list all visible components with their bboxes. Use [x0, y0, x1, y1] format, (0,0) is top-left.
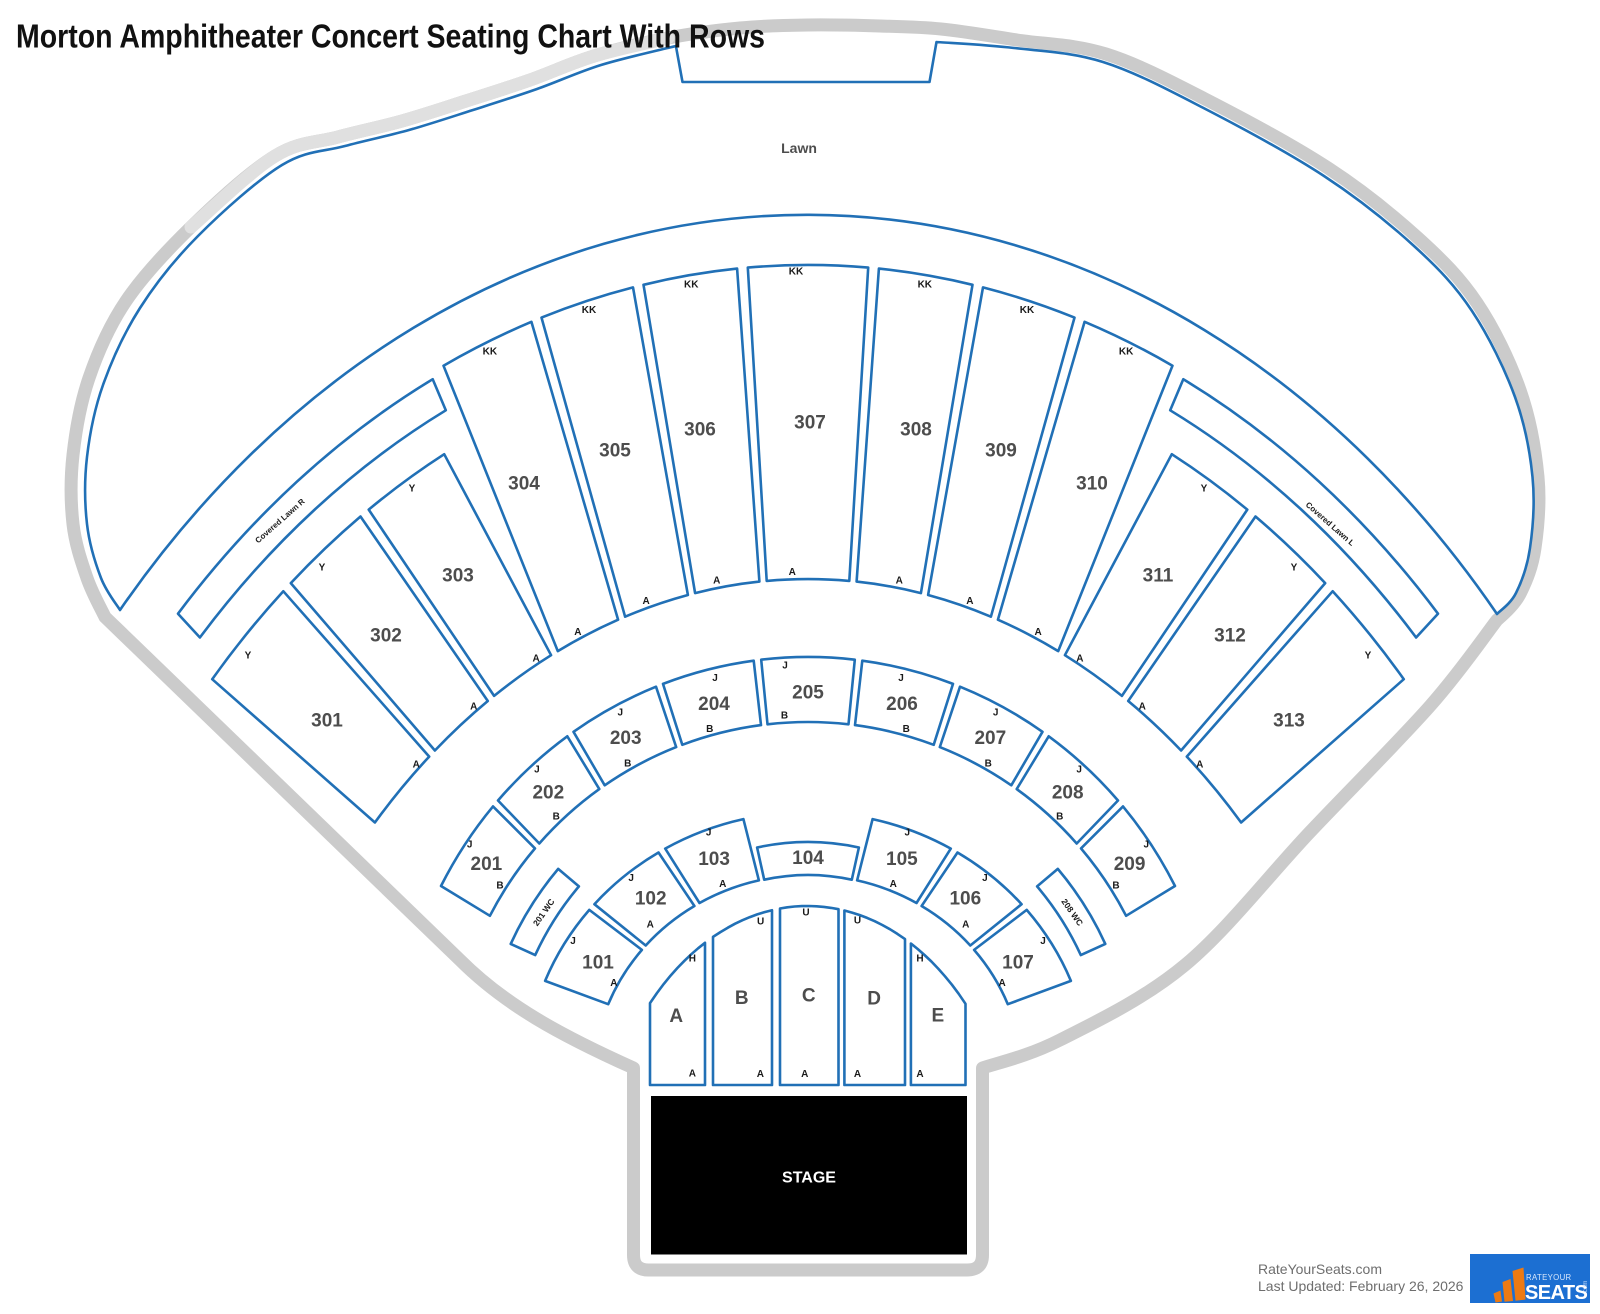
- svg-text:A: A: [642, 596, 649, 607]
- svg-text:202: 202: [532, 783, 564, 804]
- svg-text:U: U: [802, 908, 809, 919]
- svg-text:Last Updated: February 26, 202: Last Updated: February 26, 2026: [1258, 1278, 1464, 1294]
- svg-text:J: J: [1144, 839, 1150, 850]
- svg-text:203: 203: [610, 728, 642, 749]
- svg-text:A: A: [647, 920, 654, 931]
- svg-text:KK: KK: [483, 346, 498, 357]
- svg-text:J: J: [905, 827, 911, 838]
- svg-text:Y: Y: [245, 651, 252, 662]
- svg-text:U: U: [757, 916, 764, 927]
- svg-text:STAGE: STAGE: [782, 1170, 836, 1187]
- svg-text:A: A: [1034, 627, 1041, 638]
- svg-text:J: J: [467, 839, 473, 850]
- svg-text:B: B: [1056, 812, 1063, 823]
- svg-text:Y: Y: [409, 484, 416, 495]
- svg-text:J: J: [782, 661, 788, 672]
- svg-text:105: 105: [886, 849, 918, 870]
- svg-text:B: B: [624, 758, 631, 769]
- svg-text:KK: KK: [1119, 346, 1134, 357]
- svg-text:A: A: [854, 1069, 861, 1080]
- svg-text:B: B: [781, 711, 788, 722]
- svg-text:Y: Y: [319, 563, 326, 574]
- svg-text:A: A: [890, 879, 897, 890]
- svg-text:J: J: [706, 827, 712, 838]
- svg-text:305: 305: [599, 441, 631, 462]
- svg-text:206: 206: [886, 694, 918, 715]
- svg-text:KK: KK: [1020, 305, 1035, 316]
- svg-text:313: 313: [1273, 711, 1305, 732]
- svg-text:KK: KK: [684, 280, 699, 291]
- svg-text:H: H: [916, 954, 923, 965]
- svg-text:J: J: [712, 673, 718, 684]
- svg-text:J: J: [1040, 936, 1046, 947]
- svg-text:A: A: [470, 702, 477, 713]
- svg-text:J: J: [1076, 764, 1082, 775]
- svg-text:A: A: [574, 627, 581, 638]
- svg-text:Lawn: Lawn: [781, 140, 817, 156]
- svg-text:RateYourSeats.com: RateYourSeats.com: [1258, 1261, 1382, 1277]
- svg-text:C: C: [802, 985, 816, 1006]
- svg-text:KK: KK: [789, 267, 804, 278]
- svg-text:A: A: [689, 1069, 696, 1080]
- svg-text:309: 309: [985, 441, 1017, 462]
- svg-text:A: A: [413, 759, 420, 770]
- svg-text:E: E: [931, 1005, 944, 1026]
- svg-text:A: A: [713, 576, 720, 587]
- svg-text:J: J: [534, 764, 540, 775]
- svg-text:301: 301: [311, 711, 343, 732]
- svg-text:Y: Y: [1365, 651, 1372, 662]
- svg-text:A: A: [896, 576, 903, 587]
- svg-text:J: J: [618, 708, 624, 719]
- svg-text:A: A: [1076, 653, 1083, 664]
- svg-text:D: D: [867, 988, 881, 1009]
- svg-text:308: 308: [900, 420, 932, 441]
- svg-text:307: 307: [794, 413, 826, 434]
- svg-text:B: B: [903, 724, 910, 735]
- svg-text:U: U: [854, 915, 861, 926]
- svg-text:205: 205: [792, 683, 824, 704]
- svg-text:B: B: [496, 881, 503, 892]
- svg-text:201: 201: [471, 854, 503, 875]
- svg-text:A: A: [1196, 759, 1203, 770]
- svg-text:A: A: [801, 1069, 808, 1080]
- svg-text:207: 207: [974, 728, 1006, 749]
- svg-text:A: A: [719, 879, 726, 890]
- svg-text:A: A: [998, 978, 1005, 989]
- svg-text:B: B: [706, 724, 713, 735]
- svg-text:Morton Amphitheater Concert Se: Morton Amphitheater Concert Seating Char…: [16, 18, 765, 55]
- svg-text:B: B: [1112, 881, 1119, 892]
- svg-text:303: 303: [442, 566, 474, 587]
- svg-text:106: 106: [949, 888, 981, 909]
- svg-text:A: A: [610, 978, 617, 989]
- svg-text:102: 102: [635, 888, 667, 909]
- svg-text:107: 107: [1002, 953, 1034, 974]
- svg-text:A: A: [789, 567, 796, 578]
- svg-text:312: 312: [1214, 626, 1246, 647]
- svg-text:A: A: [669, 1006, 683, 1027]
- svg-text:J: J: [993, 708, 999, 719]
- svg-text:J: J: [898, 673, 904, 684]
- svg-text:B: B: [985, 758, 992, 769]
- svg-text:104: 104: [792, 848, 824, 869]
- svg-text:310: 310: [1076, 474, 1108, 495]
- svg-text:209: 209: [1114, 854, 1146, 875]
- svg-text:.com: .com: [1582, 1281, 1589, 1294]
- svg-text:A: A: [757, 1069, 764, 1080]
- svg-text:302: 302: [370, 626, 402, 647]
- svg-text:A: A: [962, 920, 969, 931]
- svg-text:B: B: [553, 812, 560, 823]
- svg-text:A: A: [916, 1069, 923, 1080]
- svg-text:101: 101: [582, 953, 614, 974]
- svg-text:Y: Y: [1291, 563, 1298, 574]
- svg-text:A: A: [966, 596, 973, 607]
- svg-text:RATEYOUR: RATEYOUR: [1526, 1273, 1572, 1282]
- svg-text:SEATS: SEATS: [1525, 1282, 1587, 1304]
- svg-text:311: 311: [1143, 566, 1174, 587]
- svg-text:H: H: [689, 954, 696, 965]
- svg-text:J: J: [570, 936, 576, 947]
- svg-text:204: 204: [698, 694, 730, 715]
- svg-text:KK: KK: [582, 305, 597, 316]
- svg-text:A: A: [1139, 702, 1146, 713]
- svg-text:208: 208: [1052, 783, 1084, 804]
- svg-text:B: B: [735, 988, 749, 1009]
- svg-text:304: 304: [508, 474, 540, 495]
- svg-text:J: J: [628, 873, 634, 884]
- svg-text:KK: KK: [918, 280, 933, 291]
- svg-text:J: J: [982, 873, 988, 884]
- svg-text:306: 306: [684, 420, 716, 441]
- svg-text:103: 103: [698, 849, 730, 870]
- svg-text:Y: Y: [1201, 484, 1208, 495]
- svg-text:A: A: [532, 653, 539, 664]
